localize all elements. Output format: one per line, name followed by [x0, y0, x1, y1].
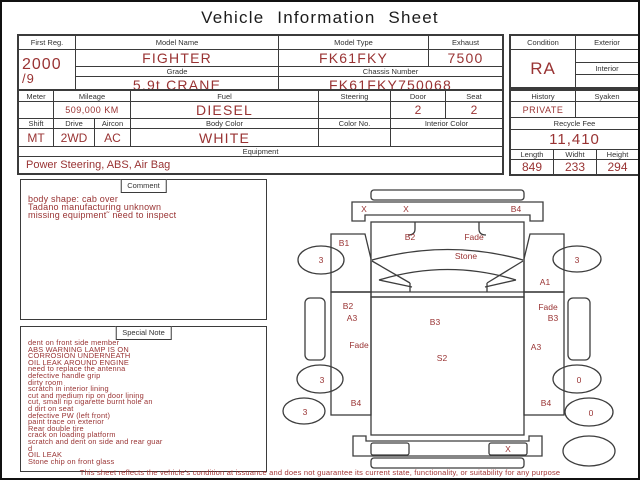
length-value: 849 — [511, 160, 554, 175]
meter-header: Meter — [19, 91, 54, 102]
mileage-value: 509,000 KM — [54, 102, 131, 119]
interior-value — [576, 75, 639, 88]
damage-label-stone: Stone — [455, 251, 477, 261]
damage-label-a3: A3 — [347, 313, 358, 323]
recycle-fee-value: 11,410 — [511, 130, 639, 150]
meter-value — [19, 102, 54, 119]
damage-label-b1: B1 — [339, 238, 350, 248]
body-color-header: Body Color — [131, 119, 319, 129]
aircon-header: Aircon — [95, 119, 131, 129]
damage-label-x: X — [361, 204, 367, 214]
spec-table: Meter Mileage Fuel Steering Door Seat 50… — [18, 90, 503, 174]
mileage-header: Mileage — [54, 91, 131, 102]
interior-color-header: Interior Color — [391, 119, 503, 129]
interior-header: Interior — [576, 63, 639, 75]
body-color-value: WHITE — [131, 129, 319, 147]
truck-outline — [283, 190, 615, 468]
damage-label-b2: B2 — [343, 301, 354, 311]
door-value: 2 — [391, 102, 446, 119]
steering-value — [319, 102, 391, 119]
damage-label-0: 0 — [589, 408, 594, 418]
damage-label-b2: B2 — [405, 232, 416, 242]
comment-box-label: Comment — [120, 179, 167, 193]
history-value: PRIVATE — [511, 102, 576, 118]
syaken-header: Syaken — [576, 91, 639, 102]
model-name-value: FIGHTER — [76, 50, 279, 67]
shift-value: MT — [19, 129, 54, 147]
damage-label-a3: A3 — [531, 342, 542, 352]
fuel-value: DIESEL — [131, 102, 319, 119]
height-value: 294 — [597, 160, 639, 175]
steering-header: Steering — [319, 91, 391, 102]
damage-label-fade: Fade — [349, 340, 369, 350]
drive-header: Drive — [54, 119, 95, 129]
fender-left — [331, 234, 371, 292]
grade-header: Grade — [76, 67, 279, 77]
damage-label-x: X — [505, 444, 511, 454]
damage-label-3: 3 — [575, 255, 580, 265]
damage-label-b4: B4 — [351, 398, 362, 408]
rear-bumper — [353, 436, 542, 456]
equipment-header: Equipment — [19, 147, 503, 157]
damage-label-3: 3 — [320, 375, 325, 385]
color-no-value — [319, 129, 391, 147]
special-note-text: dent on front side member ABS WARNING LA… — [21, 327, 266, 465]
first-reg-value: 2000/9 — [19, 50, 76, 94]
damage-label-fade: Fade — [464, 232, 484, 242]
damage-label-3: 3 — [303, 407, 308, 417]
exterior-header: Exterior — [576, 36, 639, 50]
model-name-header: Model Name — [76, 36, 279, 50]
equipment-value: Power Steering, ABS, Air Bag — [19, 157, 503, 174]
damage-label-0: 0 — [577, 375, 582, 385]
interior-color-value — [391, 129, 503, 147]
damage-label-b3: B3 — [548, 313, 559, 323]
page-title: Vehicle Information Sheet — [2, 8, 638, 28]
condition-header: Condition — [511, 36, 576, 50]
truck-roof-bar — [371, 190, 524, 200]
syaken-value — [576, 102, 639, 118]
damage-label-b4: B4 — [511, 204, 522, 214]
length-header: Length — [511, 150, 554, 160]
model-info-table: First Reg. Model Name Model Type Exhaust… — [18, 35, 503, 94]
exhaust-header: Exhaust — [429, 36, 503, 50]
vehicle-damage-diagram: XXB4B1B2FadeStoneA133B2A3FadeB4FadeB3A3B… — [282, 182, 640, 480]
chassis-number-header: Chassis Number — [279, 67, 503, 77]
damage-labels: XXB4B1B2FadeStoneA133B2A3FadeB4FadeB3A3B… — [303, 204, 594, 454]
condition-panel: Condition Exterior RA Interior — [510, 35, 639, 88]
drive-value: 2WD — [54, 129, 95, 147]
seat-header: Seat — [446, 91, 503, 102]
damage-label-x: X — [403, 204, 409, 214]
height-header: Height — [597, 150, 639, 160]
rear-lamp-left — [371, 443, 409, 455]
model-type-header: Model Type — [279, 36, 429, 50]
truck-cab — [371, 222, 524, 297]
condition-value: RA — [511, 50, 576, 88]
side-guard-right — [568, 298, 590, 360]
recycle-fee-header: Recycle Fee — [511, 118, 639, 130]
rear-bar — [371, 458, 524, 468]
vehicle-information-sheet: Vehicle Information Sheet First Reg. Mod… — [0, 0, 640, 480]
damage-label-b3: B3 — [430, 317, 441, 327]
first-reg-month: /9 — [22, 71, 35, 86]
history-panel: History Syaken PRIVATE Recycle Fee 11,41… — [510, 90, 639, 175]
damage-label-a1: A1 — [540, 277, 551, 287]
fuel-header: Fuel — [131, 91, 319, 102]
first-reg-header: First Reg. — [19, 36, 76, 50]
special-note-box: Special Note dent on front side member A… — [20, 326, 267, 472]
damage-label-s2: S2 — [437, 353, 448, 363]
special-note-box-label: Special Note — [115, 326, 172, 340]
damage-label-fade: Fade — [538, 302, 558, 312]
width-header: Widht — [554, 150, 597, 160]
windshield-top — [372, 250, 523, 261]
history-header: History — [511, 91, 576, 102]
side-guard-left — [305, 298, 325, 360]
color-no-header: Color No. — [319, 119, 391, 129]
cargo-bed — [371, 297, 524, 435]
spare-wheel — [563, 436, 615, 466]
model-type-value: FK61FKY — [279, 50, 429, 67]
width-value: 233 — [554, 160, 597, 175]
door-header: Door — [391, 91, 446, 102]
disclaimer-footer: This sheet reflects the vehicle's condit… — [2, 468, 638, 477]
damage-label-b4: B4 — [541, 398, 552, 408]
exterior-value — [576, 50, 639, 63]
aircon-value: AC — [95, 129, 131, 147]
seat-value: 2 — [446, 102, 503, 119]
comment-box: Comment body shape: cab over Tadano manu… — [20, 179, 267, 320]
damage-label-3: 3 — [319, 255, 324, 265]
shift-header: Shift — [19, 119, 54, 129]
exhaust-value: 7500 — [429, 50, 503, 67]
